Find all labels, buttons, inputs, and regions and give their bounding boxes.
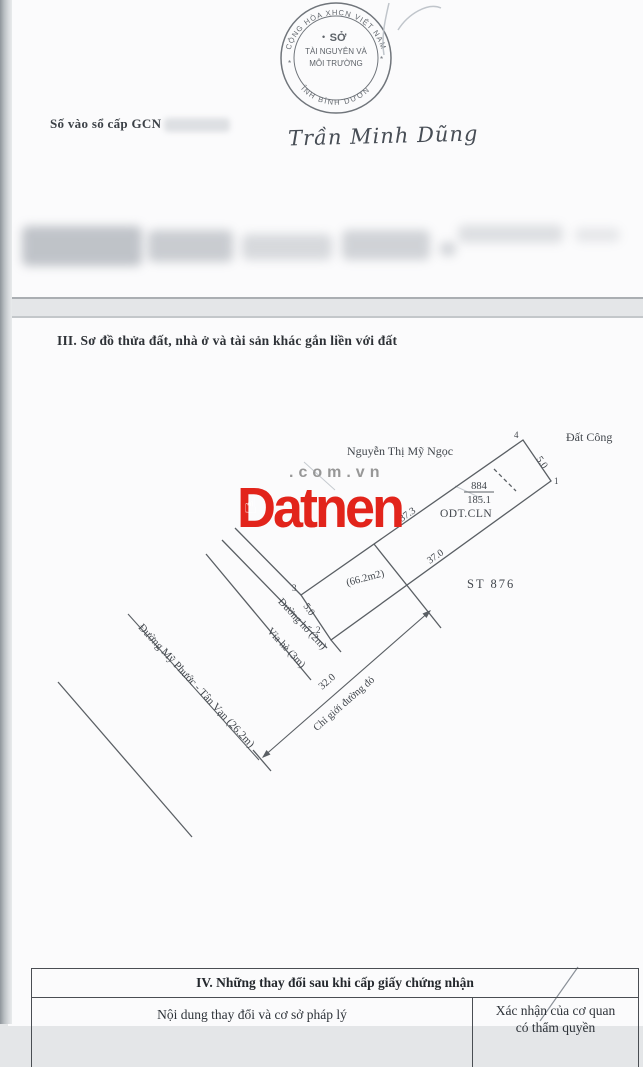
redaction-blur — [458, 225, 563, 243]
section-4-title: IV. Những thay đổi sau khi cấp giấy chứn… — [32, 969, 638, 998]
signature-text: Trần Minh Dũng — [288, 122, 479, 151]
redacted-gcn-number — [164, 118, 230, 132]
redaction-blur — [575, 228, 620, 242]
redaction-blur — [22, 226, 142, 266]
redaction-blur — [342, 230, 430, 260]
scanned-land-certificate: { "page1": { "stamp": { "arc_top": "CỘNG… — [0, 0, 643, 1024]
watermark-brand-text: Datnen — [237, 476, 402, 540]
column-header-confirmation: Xác nhận của cơ quan có thẩm quyền — [473, 998, 638, 1067]
redaction-blur — [242, 234, 332, 260]
confirmation-header-line-2: có thẩm quyền — [473, 1019, 638, 1036]
section-3-title: III. Sơ đồ thửa đất, nhà ở và tài sản kh… — [57, 333, 397, 349]
gcn-register-label: Số vào sổ cấp GCN — [50, 116, 161, 132]
confirmation-header-line-1: Xác nhận của cơ quan — [473, 1002, 638, 1019]
section-4-table: IV. Những thay đổi sau khi cấp giấy chứn… — [31, 968, 639, 1067]
page-2 — [8, 316, 643, 1026]
datnen-watermark: .com.vn Datnen ☝ — [237, 464, 409, 546]
column-header-changes: Nội dung thay đổi và cơ sở pháp lý — [32, 998, 473, 1067]
scan-left-margin — [0, 0, 12, 1024]
pointing-hand-icon: ☝ — [244, 494, 257, 519]
redaction-blur — [440, 242, 456, 256]
redaction-blur — [148, 230, 233, 262]
